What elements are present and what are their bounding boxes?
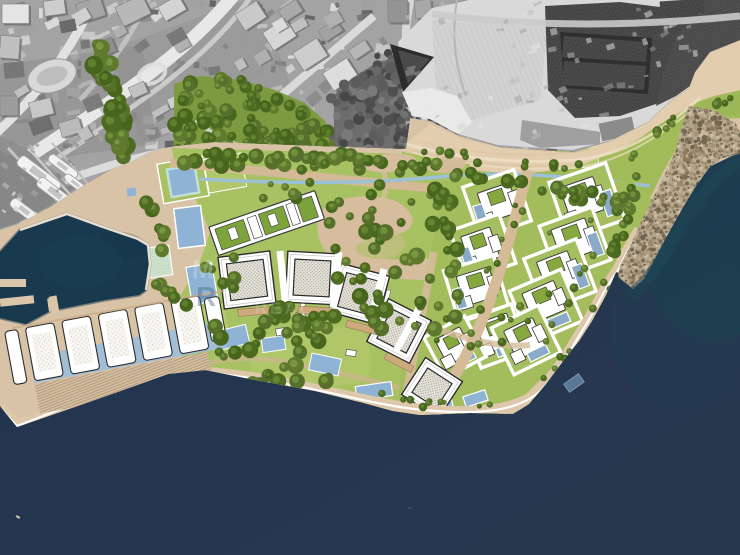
svg-text:REAL: REAL (255, 299, 313, 318)
svg-text:R: R (196, 281, 216, 312)
svg-text:M: M (192, 254, 214, 284)
